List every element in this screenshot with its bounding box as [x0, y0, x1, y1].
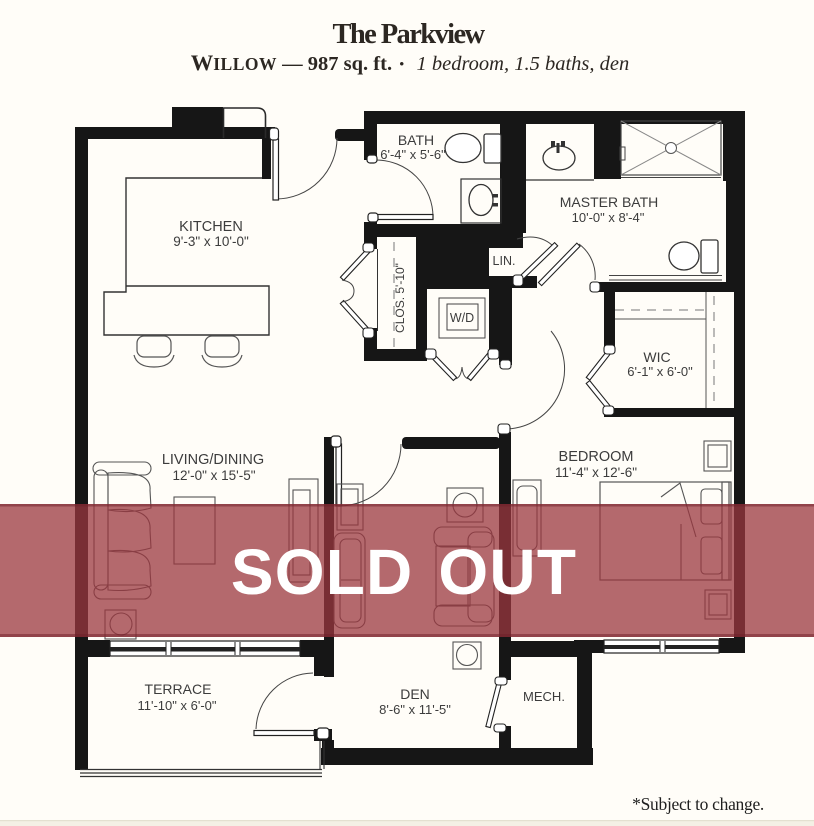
- svg-text:The Parkview: The Parkview: [333, 19, 486, 50]
- svg-text:*Subject to change.: *Subject to change.: [632, 794, 764, 814]
- svg-text:SOLD OUT: SOLD OUT: [231, 536, 577, 608]
- svg-text:8'-6" x 11'-5": 8'-6" x 11'-5": [379, 702, 451, 717]
- svg-text:W/D: W/D: [450, 311, 474, 325]
- svg-text:LIVING/DINING: LIVING/DINING: [162, 452, 264, 468]
- svg-text:6'-4" x 5'-6": 6'-4" x 5'-6": [380, 147, 446, 162]
- svg-text:11'-10" x 6'-0": 11'-10" x 6'-0": [138, 698, 217, 713]
- svg-text:11'-4" x 12'-6": 11'-4" x 12'-6": [555, 465, 637, 480]
- svg-text:6'-1" x 6'-0": 6'-1" x 6'-0": [627, 364, 693, 379]
- svg-text:CLOS. 5'-10": CLOS. 5'-10": [393, 263, 407, 333]
- svg-text:BEDROOM: BEDROOM: [559, 449, 634, 465]
- svg-text:TERRACE: TERRACE: [145, 681, 212, 697]
- svg-text:10'-0" x 8'-4": 10'-0" x 8'-4": [572, 210, 645, 225]
- svg-text:12'-0" x 15'-5": 12'-0" x 15'-5": [172, 468, 255, 483]
- svg-text:BATH: BATH: [398, 132, 434, 148]
- svg-text:KITCHEN: KITCHEN: [179, 219, 243, 235]
- svg-text:MASTER BATH: MASTER BATH: [560, 194, 659, 210]
- svg-text:MECH.: MECH.: [523, 689, 565, 704]
- svg-text:DEN: DEN: [400, 686, 430, 702]
- svg-text:LIN.: LIN.: [493, 254, 516, 268]
- svg-text:WIC: WIC: [643, 349, 670, 365]
- svg-text:9'-3" x 10'-0": 9'-3" x 10'-0": [173, 234, 249, 249]
